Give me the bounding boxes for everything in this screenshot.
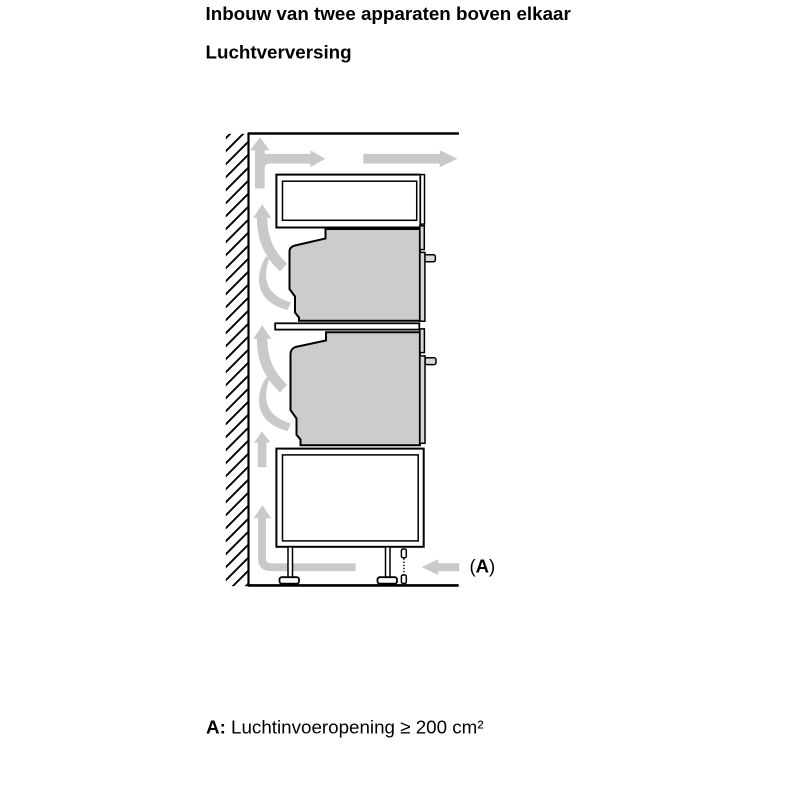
svg-text:Inbouw van twee apparaten bove: Inbouw van twee apparaten boven elkaar bbox=[206, 3, 572, 24]
svg-text:A: Luchtinvoeropening ≥ 200 cm: A: Luchtinvoeropening ≥ 200 cm² bbox=[206, 716, 484, 737]
svg-text:(A): (A) bbox=[470, 556, 496, 577]
svg-text:Luchtverversing: Luchtverversing bbox=[206, 41, 352, 62]
